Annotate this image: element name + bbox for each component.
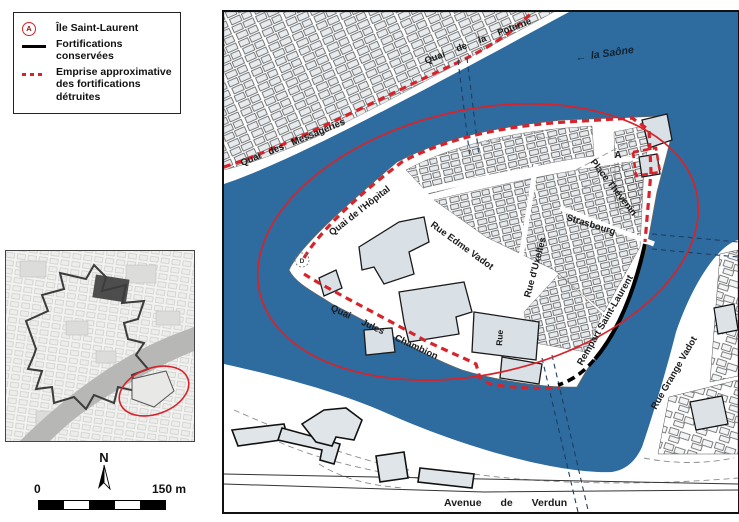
legend-item-island: A Île Saint-Laurent <box>22 22 172 35</box>
scale-strip <box>38 500 166 510</box>
solid-line-icon <box>22 45 46 49</box>
legend-item-conserved: Fortifications conservées <box>22 38 172 63</box>
circle-a-icon: A <box>22 22 36 36</box>
label-rue-small: Rue <box>494 329 505 346</box>
scale-bar: 0 150 m <box>30 482 190 514</box>
saone-arrow-icon: ← <box>575 51 587 64</box>
north-letter: N <box>86 452 122 464</box>
label-avenue-verdun: Avenue de Verdun <box>444 497 567 509</box>
main-map: D A Quai de la Poterne Quai des Messager… <box>222 10 739 514</box>
inset-location-map <box>5 250 195 442</box>
inset-svg <box>6 251 194 441</box>
legend-label-destroyed: Emprise approximative des fortifications… <box>56 66 172 103</box>
scale-max: 150 m <box>152 482 186 496</box>
legend-label-conserved: Fortifications conservées <box>56 38 172 63</box>
legend-box: A Île Saint-Laurent Fortifications conse… <box>13 12 181 114</box>
legend-label-island: Île Saint-Laurent <box>56 22 138 34</box>
main-map-svg: D A Quai de la Poterne Quai des Messager… <box>224 12 738 512</box>
island-marker-letter: A <box>614 150 621 161</box>
scale-zero: 0 <box>34 482 41 496</box>
figure-canvas: A Île Saint-Laurent Fortifications conse… <box>0 0 739 522</box>
dotted-line-icon <box>22 73 46 77</box>
west-marker-letter: D <box>300 258 305 265</box>
avenue-road-lines <box>224 474 738 492</box>
legend-item-destroyed: Emprise approximative des fortifications… <box>22 66 172 103</box>
